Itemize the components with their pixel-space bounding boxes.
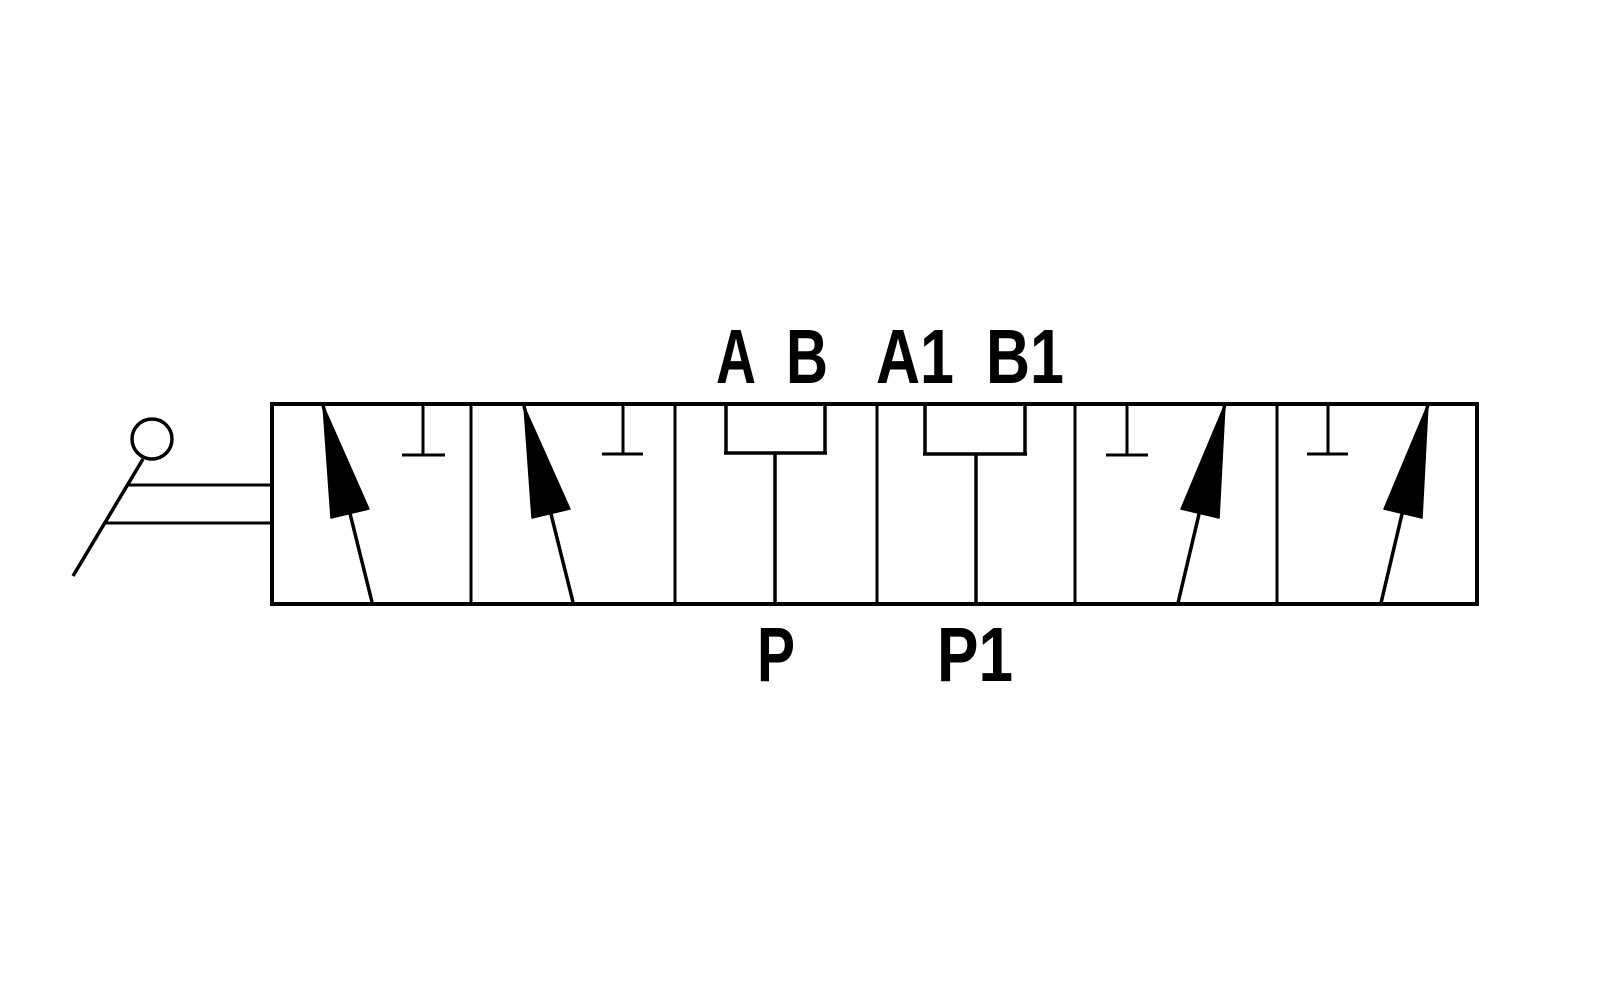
lever-arm <box>73 459 143 576</box>
port-label-a1: A1 <box>876 314 954 400</box>
port-bracket-connector <box>724 404 827 604</box>
port-label-p: P <box>757 612 795 698</box>
flow-arrow-icon <box>323 405 369 518</box>
valve-section-5 <box>1106 404 1225 603</box>
valve-schematic: A B A1 B1 P P1 <box>0 0 1600 1000</box>
blocked-port-icon <box>1106 404 1148 455</box>
port-label-b1: B1 <box>986 314 1064 400</box>
valve-body <box>272 404 1477 604</box>
valve-section-4 <box>923 404 1027 604</box>
port-label-p1: P1 <box>937 612 1013 698</box>
valve-section-6 <box>1307 404 1428 603</box>
flow-arrow-icon <box>1384 404 1428 518</box>
valve-section-3 <box>724 404 827 604</box>
port-label-a: A <box>716 314 756 400</box>
flow-arrow-icon <box>1181 404 1225 518</box>
valve-section-1 <box>323 404 445 602</box>
section-dividers <box>471 404 1277 604</box>
blocked-port-icon <box>1307 404 1348 454</box>
valve-section-2 <box>524 404 643 602</box>
blocked-port-icon <box>402 404 445 455</box>
flow-arrow-icon <box>524 406 570 518</box>
port-labels: A B A1 B1 P P1 <box>716 314 1064 698</box>
lever-knob <box>132 419 172 459</box>
valve-schematic-canvas: A B A1 B1 P P1 <box>0 0 1600 1000</box>
port-bracket-connector <box>923 404 1027 604</box>
port-label-b: B <box>786 314 828 400</box>
manual-lever-icon <box>73 419 272 576</box>
blocked-port-icon <box>602 404 643 454</box>
